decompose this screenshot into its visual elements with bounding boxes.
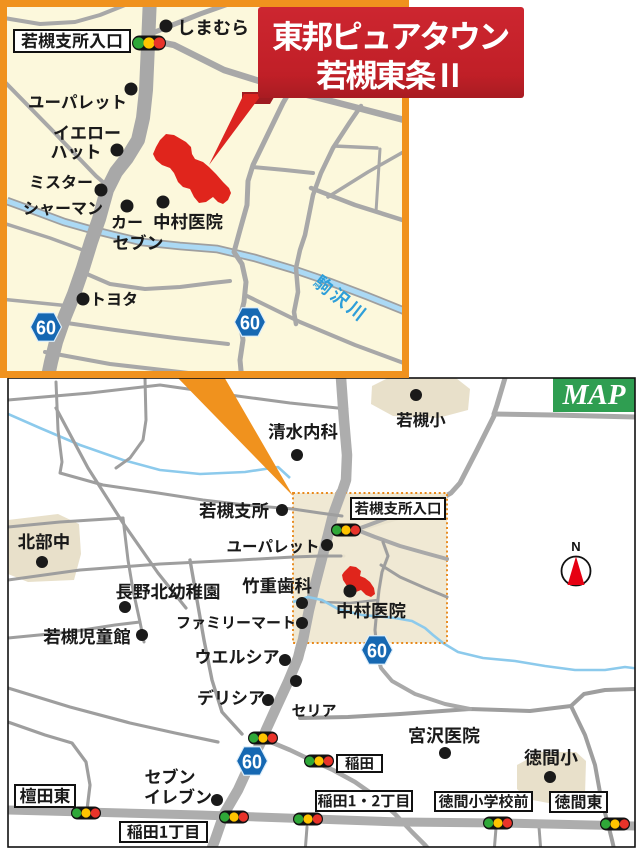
svg-text:N: N bbox=[571, 539, 580, 554]
svg-text:MAP: MAP bbox=[562, 379, 626, 411]
svg-text:60: 60 bbox=[367, 639, 387, 662]
svg-text:60: 60 bbox=[36, 316, 56, 339]
svg-text:60: 60 bbox=[240, 311, 260, 334]
svg-text:60: 60 bbox=[242, 750, 262, 773]
